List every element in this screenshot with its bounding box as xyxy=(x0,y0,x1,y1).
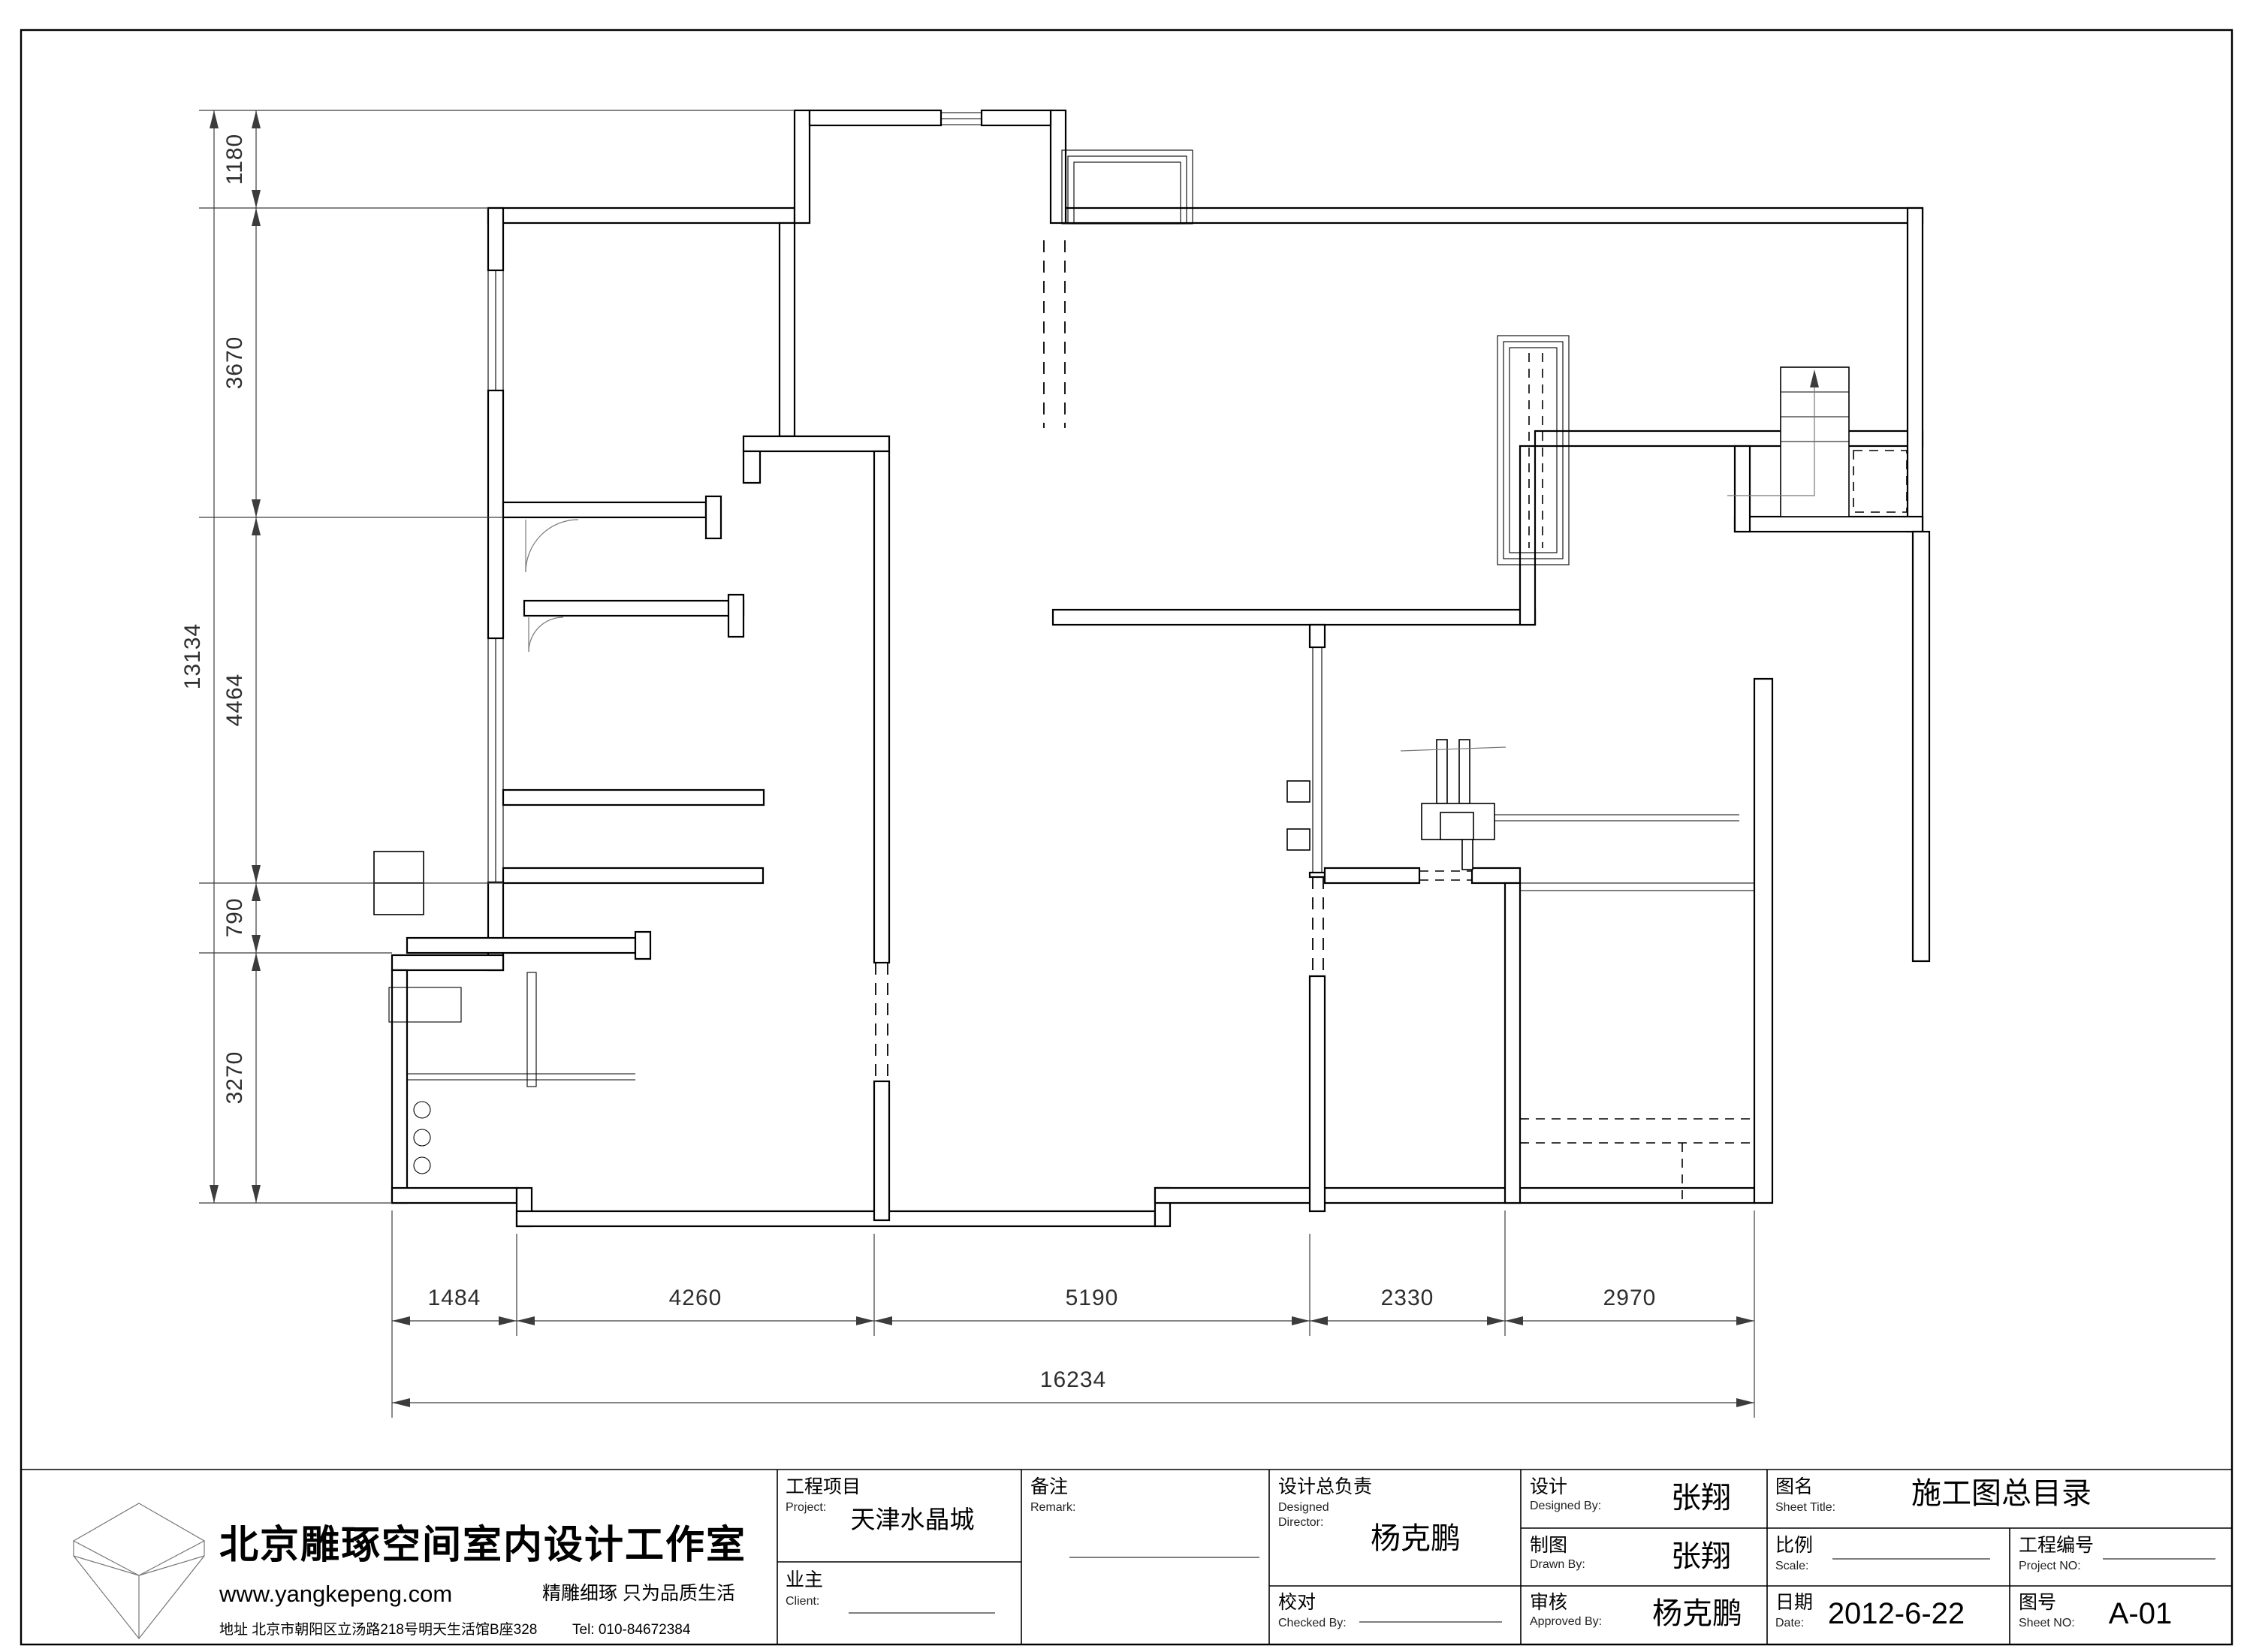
svg-text:3670: 3670 xyxy=(222,336,247,390)
company-address: 地址 北京市朝阳区立汤路218号明天生活馆B座328 xyxy=(219,1621,537,1638)
company-name: 北京雕琢空间室内设计工作室 xyxy=(219,1524,746,1567)
svg-text:1180: 1180 xyxy=(222,134,247,185)
company-tel: Tel: 010-84672384 xyxy=(572,1622,691,1638)
svg-text:图号: 图号 xyxy=(2019,1592,2056,1613)
date-value: 2012-6-22 xyxy=(1828,1597,1965,1630)
svg-text:制图: 制图 xyxy=(1530,1535,1567,1556)
project-value: 天津水晶城 xyxy=(851,1506,975,1533)
door-opening-middle xyxy=(1313,877,1323,976)
svg-text:Project NO:: Project NO: xyxy=(2019,1560,2081,1572)
svg-text:设计总负责: 设计总负责 xyxy=(1278,1476,1372,1497)
svg-text:业主: 业主 xyxy=(786,1569,823,1590)
company-website: www.yangkepeng.com xyxy=(219,1581,452,1607)
svg-text:图名: 图名 xyxy=(1775,1476,1813,1497)
door-arc-2 xyxy=(529,617,563,652)
svg-text:工程项目: 工程项目 xyxy=(786,1476,861,1497)
door-opening-center xyxy=(876,963,888,1081)
svg-text:校对: 校对 xyxy=(1278,1592,1316,1613)
window-west-2 xyxy=(488,638,503,882)
svg-text:4260: 4260 xyxy=(669,1286,722,1310)
window-west-1 xyxy=(488,270,503,390)
kitchen-fixtures xyxy=(389,972,635,1174)
svg-text:3270: 3270 xyxy=(222,1051,247,1105)
designed-by-value: 张翔 xyxy=(1671,1482,1731,1515)
svg-text:13134: 13134 xyxy=(180,623,205,689)
svg-text:5190: 5190 xyxy=(1066,1286,1119,1310)
svg-text:日期: 日期 xyxy=(1775,1592,1813,1613)
svg-text:备注: 备注 xyxy=(1030,1476,1068,1497)
dimension-bottom-chain: 1484 4260 5190 2330 2970 16234 xyxy=(392,1210,1754,1418)
designed-director-value: 杨克鹏 xyxy=(1371,1522,1461,1555)
sheet-no-value: A-01 xyxy=(2109,1597,2173,1630)
drawn-by-value: 张翔 xyxy=(1671,1540,1731,1573)
company-logo-icon xyxy=(74,1503,204,1638)
svg-text:1484: 1484 xyxy=(428,1286,481,1310)
window-top xyxy=(941,113,982,125)
svg-text:Designed: Designed xyxy=(1278,1501,1329,1514)
opening-entry-living xyxy=(1044,240,1065,428)
svg-text:Designed By:: Designed By: xyxy=(1530,1500,1601,1512)
svg-text:2330: 2330 xyxy=(1381,1286,1434,1310)
floor-plan-sheet: 1180 3670 4464 790 3270 13134 1484 4260 … xyxy=(0,0,2253,1652)
window-middle xyxy=(1313,647,1322,873)
door-opening-bath xyxy=(1419,871,1472,880)
svg-text:Date:: Date: xyxy=(1775,1617,1804,1629)
svg-text:2970: 2970 xyxy=(1603,1286,1657,1310)
svg-text:审核: 审核 xyxy=(1530,1592,1567,1613)
svg-text:Sheet NO:: Sheet NO: xyxy=(2019,1617,2075,1629)
title-block: 北京雕琢空间室内设计工作室 www.yangkepeng.com 精雕细琢 只为… xyxy=(21,1470,2232,1644)
svg-text:设计: 设计 xyxy=(1530,1476,1567,1497)
door-arc-1 xyxy=(526,520,578,572)
svg-text:Checked By:: Checked By: xyxy=(1278,1617,1347,1629)
drawing-sheet: 1180 3670 4464 790 3270 13134 1484 4260 … xyxy=(0,0,2253,1652)
shaft-dashed xyxy=(1853,451,1907,512)
svg-text:Sheet Title:: Sheet Title: xyxy=(1775,1501,1835,1514)
svg-text:4464: 4464 xyxy=(222,674,247,727)
svg-text:16234: 16234 xyxy=(1040,1367,1106,1392)
svg-text:工程编号: 工程编号 xyxy=(2019,1535,2094,1556)
svg-text:Client:: Client: xyxy=(786,1595,819,1608)
sheet-title-value: 施工图总目录 xyxy=(1911,1477,2092,1510)
dimension-left-chain: 1180 3670 4464 790 3270 13134 xyxy=(180,110,795,1203)
svg-text:790: 790 xyxy=(222,897,247,937)
svg-text:比例: 比例 xyxy=(1775,1535,1813,1556)
svg-text:Remark:: Remark: xyxy=(1030,1501,1075,1514)
company-slogan: 精雕细琢 只为品质生活 xyxy=(542,1583,735,1604)
approved-by-value: 杨克鹏 xyxy=(1652,1597,1742,1630)
svg-text:Drawn By:: Drawn By: xyxy=(1530,1558,1585,1571)
plumbing-fixtures xyxy=(1401,740,1739,870)
svg-text:Approved By:: Approved By: xyxy=(1530,1615,1602,1628)
svg-text:Scale:: Scale: xyxy=(1775,1560,1808,1572)
svg-text:Project:: Project: xyxy=(786,1501,826,1514)
svg-text:Director:: Director: xyxy=(1278,1516,1323,1529)
floor-plan xyxy=(374,110,1929,1226)
